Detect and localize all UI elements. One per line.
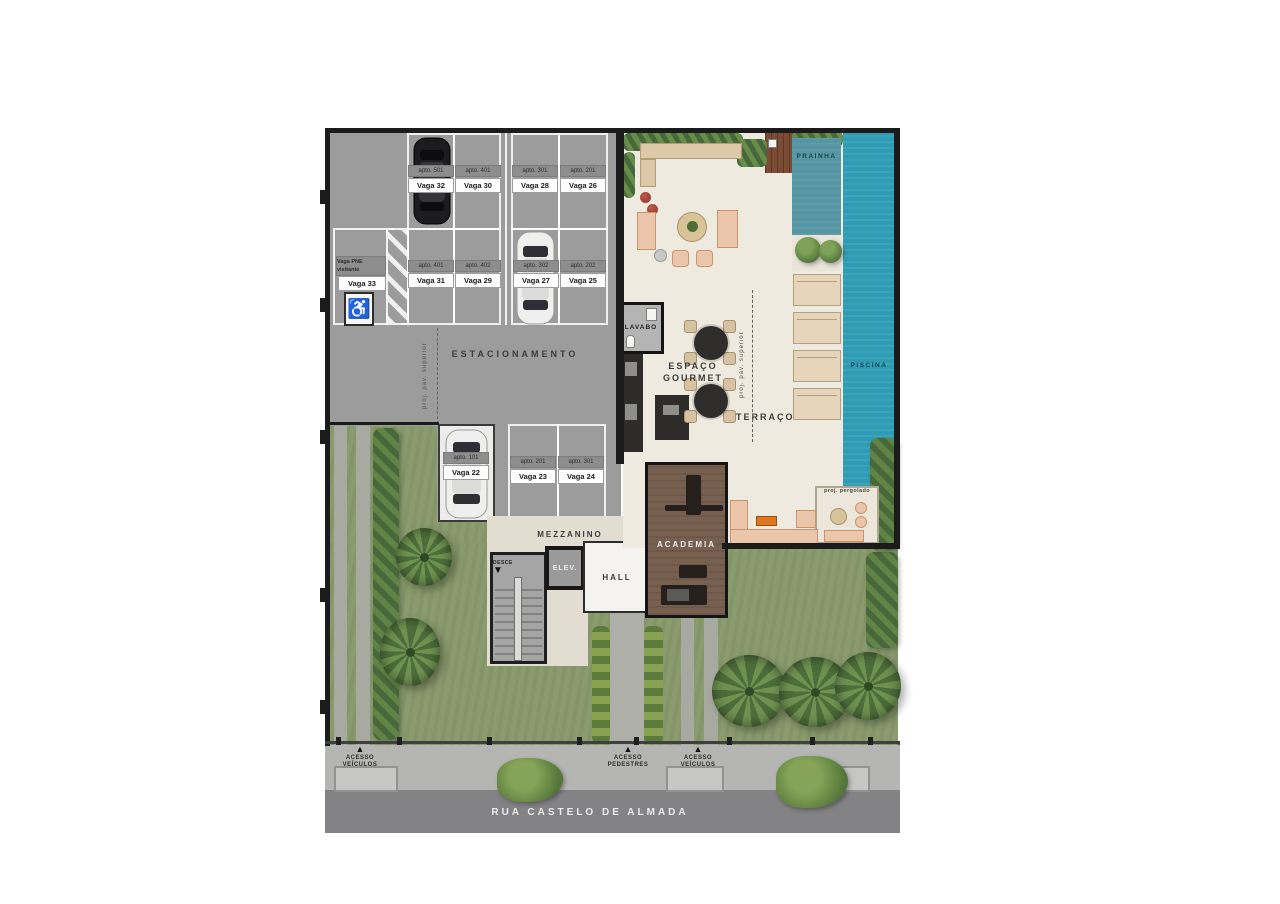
stall-vaga-label: Vaga 28 xyxy=(512,178,558,193)
plant-pot xyxy=(640,192,651,203)
stall-label: apto. 201 Vaga 23 xyxy=(510,456,556,484)
fence-post xyxy=(577,737,582,745)
palm-tree xyxy=(835,652,901,720)
stall-vaga-label: Vaga 29 xyxy=(455,273,501,288)
stall-divider-line xyxy=(505,133,507,325)
planter-tree xyxy=(819,240,842,263)
shrub-row xyxy=(644,626,663,744)
stairs-note: DESCE ▼ xyxy=(493,560,533,576)
stall-apto-label: apto. 202 xyxy=(560,260,606,272)
fence-post xyxy=(634,737,639,745)
dining-chair xyxy=(723,378,736,391)
stall-label: apto. 101 Vaga 22 xyxy=(443,452,489,480)
palm-tree xyxy=(712,655,786,727)
espaco-gourmet-label: ESPAÇO GOURMET xyxy=(662,360,724,384)
chaise-lounge xyxy=(637,212,656,250)
sun-lounger xyxy=(793,388,841,420)
fence-post xyxy=(336,737,341,745)
street-name-label: RUA CASTELO DE ALMADA xyxy=(460,807,720,818)
stall-label: apto. 402 Vaga 29 xyxy=(455,260,501,288)
stall-apto-label: apto. 201 xyxy=(560,165,606,177)
stall-apto-label: apto. 402 xyxy=(455,260,501,272)
projection-dashed-line xyxy=(437,328,438,424)
palm-tree xyxy=(380,618,440,686)
lavabo-label: LAVABO xyxy=(618,324,664,331)
driveway-track xyxy=(334,425,347,745)
wall-pilaster xyxy=(320,190,328,204)
hedge-corner xyxy=(866,552,898,648)
access-pedestrians: ▲ ACESSO PEDESTRES xyxy=(600,745,656,769)
dining-chair xyxy=(723,410,736,423)
cooktop xyxy=(625,362,637,376)
fence-post xyxy=(810,737,815,745)
stall-label: Vaga 33 xyxy=(338,276,386,291)
mezzanine-label: MEZZANINO xyxy=(500,530,640,539)
access-label: ACESSO PEDESTRES xyxy=(600,755,656,769)
stall-label: apto. 501 Vaga 32 xyxy=(408,165,454,193)
stall-apto-label: apto. 201 xyxy=(510,456,556,468)
pergola-chair xyxy=(855,502,867,514)
no-parking-hatch xyxy=(386,228,409,325)
side-table xyxy=(654,249,667,262)
floor-plan-canvas: RUA CASTELO DE ALMADA xyxy=(0,0,1280,904)
projection-note: proj. pav. superior xyxy=(422,326,428,426)
up-arrow-icon: ▲ xyxy=(670,745,726,754)
wall-garage-bottom xyxy=(329,422,439,425)
stall-vaga-label: Vaga 25 xyxy=(560,273,606,288)
dining-table xyxy=(694,384,728,418)
terrace-planter xyxy=(623,152,635,198)
sun-lounger xyxy=(793,312,841,344)
pergola-table xyxy=(830,508,847,525)
dining-chair xyxy=(684,320,697,333)
elevator: ELEV. xyxy=(545,546,585,590)
hall: HALL xyxy=(583,541,651,613)
stall-vaga-label: Vaga 24 xyxy=(558,469,604,484)
stair-handrail xyxy=(514,577,522,661)
wall-top xyxy=(325,128,900,133)
wall-terrace-bottom xyxy=(722,543,900,549)
palm-tree xyxy=(396,528,452,586)
built-in-bench xyxy=(640,159,656,187)
planter-tree xyxy=(795,237,821,263)
prainha-label: PRAINHA xyxy=(792,153,841,160)
wall-divider xyxy=(616,131,624,464)
stall-vaga-label: Vaga 30 xyxy=(455,178,501,193)
sun-lounger xyxy=(793,350,841,382)
stall-label: apto. 302 Vaga 27 xyxy=(513,260,559,288)
stall-label: apto. 401 Vaga 31 xyxy=(408,260,454,288)
wheelchair-icon: ♿ xyxy=(347,297,371,321)
driveway-track xyxy=(681,616,694,745)
up-arrow-icon: ▲ xyxy=(600,745,656,754)
stall-label: apto. 301 Vaga 28 xyxy=(512,165,558,193)
projection-dashed-line xyxy=(752,290,753,442)
stall-vaga-label: Vaga 32 xyxy=(408,178,454,193)
wheelchair-box: ♿ xyxy=(344,292,374,326)
fire-pit-mat xyxy=(756,516,777,526)
dining-chair xyxy=(723,352,736,365)
stall-label: apto. 202 Vaga 25 xyxy=(560,260,606,288)
driveway-apron xyxy=(666,766,724,792)
fence-post xyxy=(868,737,873,745)
wall-right xyxy=(894,128,900,549)
wall-pilaster xyxy=(320,298,328,312)
stall-vaga-label: Vaga 31 xyxy=(408,273,454,288)
wall-pilaster xyxy=(320,430,328,444)
treadmill-belt xyxy=(667,589,689,601)
gym-treadmill xyxy=(661,585,707,605)
access-vehicles-right: ▲ ACESSO VEÍCULOS xyxy=(670,745,726,769)
chaise-lounge xyxy=(717,210,738,248)
pergola-sofa xyxy=(824,530,864,542)
pedestrian-path xyxy=(610,611,644,745)
piscina-label: PISCINA xyxy=(841,362,897,369)
grill xyxy=(663,405,679,415)
dining-chair xyxy=(723,320,736,333)
pne-stall-tag: Vaga PNE visitante xyxy=(336,256,386,276)
stall-apto-label: apto. 501 xyxy=(408,165,454,177)
stall-vaga-label: Vaga 22 xyxy=(443,465,489,480)
stall-apto-label: apto. 101 xyxy=(443,452,489,464)
built-in-bench xyxy=(640,143,742,159)
fence-post xyxy=(487,737,492,745)
stall-label: apto. 301 Vaga 24 xyxy=(558,456,604,484)
sofa xyxy=(730,529,818,544)
fence-post xyxy=(397,737,402,745)
stall-apto-label: apto. 401 xyxy=(408,260,454,272)
armchair xyxy=(696,250,713,267)
stall-apto-label: apto. 401 xyxy=(455,165,501,177)
armchair xyxy=(672,250,689,267)
gym-bench xyxy=(679,565,707,578)
stall-apto-label: apto. 301 xyxy=(512,165,558,177)
dining-chair xyxy=(684,410,697,423)
stall-apto-label: apto. 301 xyxy=(558,456,604,468)
driveway-apron xyxy=(334,766,398,792)
down-arrow-icon: ▼ xyxy=(493,566,533,576)
toilet xyxy=(626,335,635,348)
gym-crossbar xyxy=(665,505,723,511)
access-label: ACESSO VEÍCULOS xyxy=(332,755,388,769)
outdoor-shower xyxy=(768,139,777,148)
armchair xyxy=(796,510,816,528)
wall-pilaster xyxy=(320,700,328,714)
kitchen-sink xyxy=(625,404,637,420)
shrub-row xyxy=(592,626,610,744)
wall-pilaster xyxy=(320,588,328,602)
stall-label: apto. 401 Vaga 30 xyxy=(455,165,501,193)
hedge-row xyxy=(373,428,399,740)
driveway-track xyxy=(356,425,370,745)
projection-note: proj. pav. superior xyxy=(739,300,745,430)
sink xyxy=(646,308,657,321)
sun-lounger xyxy=(793,274,841,306)
access-vehicles-left: ▲ ACESSO VEÍCULOS xyxy=(332,745,388,769)
stall-vaga-label: Vaga 27 xyxy=(513,273,559,288)
stall-label: apto. 201 Vaga 26 xyxy=(560,165,606,193)
table-plant xyxy=(687,221,698,232)
pergola-note: proj. pergolado xyxy=(816,488,878,494)
up-arrow-icon: ▲ xyxy=(332,745,388,754)
access-label: ACESSO VEÍCULOS xyxy=(670,755,726,769)
stall-vaga-label: Vaga 26 xyxy=(560,178,606,193)
garage-area-label: ESTACIONAMENTO xyxy=(440,349,590,359)
stall-vaga-label: Vaga 23 xyxy=(510,469,556,484)
stall-apto-label: apto. 302 xyxy=(513,260,559,272)
fence-post xyxy=(727,737,732,745)
academia-label: ACADEMIA xyxy=(646,540,727,549)
dining-table xyxy=(694,326,728,360)
stall-vaga-label: Vaga 33 xyxy=(338,276,386,291)
pergola-chair xyxy=(855,516,867,528)
